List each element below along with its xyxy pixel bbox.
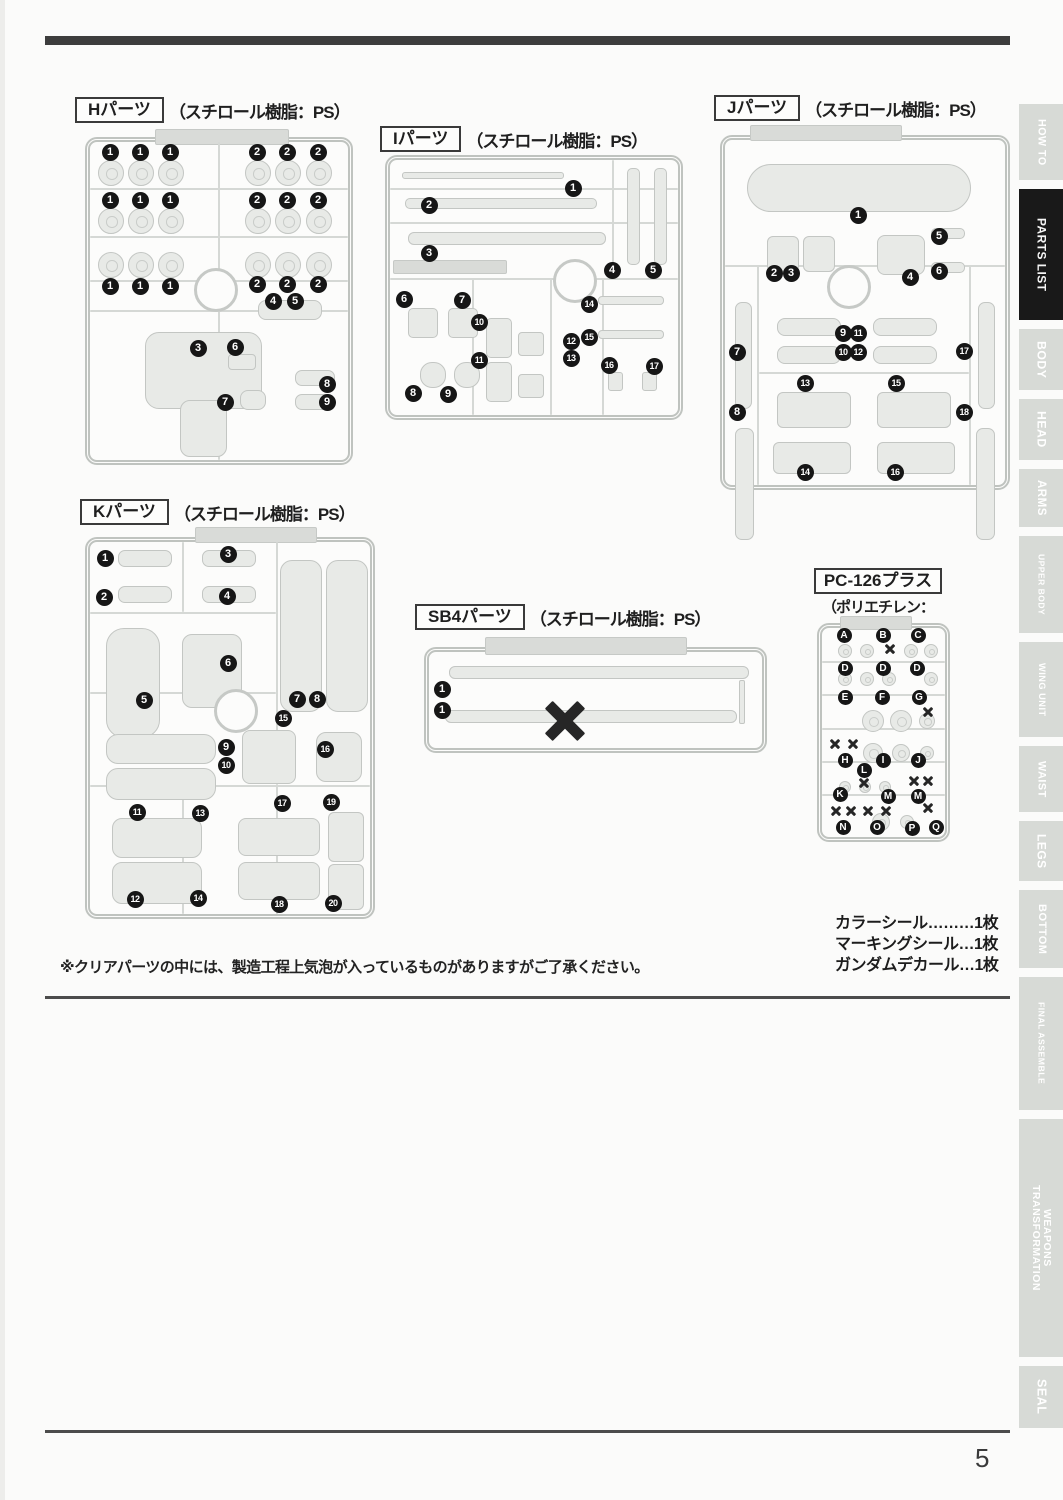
sprue-bar bbox=[472, 278, 474, 415]
tab-wing-unit: WING UNIT bbox=[1019, 642, 1063, 737]
part-number-badge: 9 bbox=[835, 325, 852, 342]
h-parts-label-box: Hパーツ bbox=[75, 97, 164, 123]
part-number-badge: 8 bbox=[729, 404, 746, 421]
part-number-badge: 18 bbox=[956, 404, 973, 421]
j-parts-material: （スチロール樹脂：PS） bbox=[805, 101, 986, 120]
round-part bbox=[158, 252, 184, 278]
part-shape bbox=[118, 586, 172, 603]
part-shape bbox=[112, 818, 202, 858]
part-number-badge: 2 bbox=[249, 276, 266, 293]
runner-center-ring bbox=[194, 268, 238, 312]
page-left-edge bbox=[0, 0, 5, 1500]
part-number-badge: 1 bbox=[132, 144, 149, 161]
polycap-part bbox=[892, 744, 910, 762]
accessory-marking-seal: マーキングシール…1枚 bbox=[835, 934, 998, 955]
part-shape bbox=[402, 172, 564, 179]
tab-how-to: HOW TO bbox=[1019, 104, 1063, 180]
tab-upper-body: UPPER BODY bbox=[1019, 536, 1063, 633]
sb4-parts-label: SB4パーツ（スチロール樹脂：PS） bbox=[415, 604, 710, 630]
sprue-bar bbox=[90, 612, 276, 614]
part-shape bbox=[118, 550, 172, 567]
part-shape bbox=[518, 332, 544, 356]
part-number-badge: 1 bbox=[850, 207, 867, 224]
k-parts-label-box: Kパーツ bbox=[80, 499, 169, 525]
part-shape bbox=[873, 318, 937, 336]
part-shape bbox=[238, 862, 320, 900]
unused-part-x-icon bbox=[542, 698, 588, 744]
sprue-bar bbox=[182, 542, 184, 612]
i-parts-label-box: Iパーツ bbox=[380, 126, 461, 152]
runner-center-ring bbox=[214, 689, 258, 733]
part-number-badge: 12 bbox=[563, 333, 580, 350]
pc-runner: ABCDDDEFGHIJLKMMNOPQ bbox=[817, 623, 950, 842]
round-part bbox=[128, 252, 154, 278]
polycap-letter-badge: P bbox=[905, 821, 920, 836]
part-number-badge: 13 bbox=[797, 375, 814, 392]
part-shape bbox=[240, 390, 266, 410]
k-parts-label: Kパーツ（スチロール樹脂：PS） bbox=[80, 499, 355, 525]
round-part bbox=[158, 160, 184, 186]
polycap-letter-badge: K bbox=[833, 787, 848, 802]
polycap-letter-badge: L bbox=[857, 763, 872, 778]
round-part bbox=[128, 160, 154, 186]
unused-part-x-icon bbox=[847, 738, 859, 750]
sprue-bar bbox=[759, 372, 969, 374]
round-part bbox=[98, 208, 124, 234]
polycap-letter-badge: H bbox=[838, 753, 853, 768]
part-number-badge: 9 bbox=[319, 394, 336, 411]
part-shape bbox=[486, 318, 512, 358]
part-number-badge: 1 bbox=[132, 192, 149, 209]
part-number-badge: 2 bbox=[310, 144, 327, 161]
tab-arms: ARMS bbox=[1019, 469, 1063, 527]
part-number-badge: 6 bbox=[227, 339, 244, 356]
part-number-badge: 1 bbox=[434, 681, 451, 698]
polycap-part bbox=[890, 710, 912, 732]
part-shape bbox=[326, 560, 368, 712]
polycap-letter-badge: M bbox=[881, 789, 896, 804]
part-number-badge: 10 bbox=[218, 757, 235, 774]
polycap-letter-badge: G bbox=[912, 690, 927, 705]
sb4-parts-label-box: SB4パーツ bbox=[415, 604, 525, 630]
part-shape bbox=[408, 308, 438, 338]
polycap-part bbox=[838, 644, 852, 658]
part-number-badge: 4 bbox=[604, 262, 621, 279]
runner-nameplate bbox=[485, 637, 687, 655]
polycap-part bbox=[924, 644, 938, 658]
polycap-letter-badge: F bbox=[875, 690, 890, 705]
h-runner: 1111111112222222224536789 bbox=[85, 137, 353, 465]
part-shape bbox=[877, 235, 925, 275]
round-part bbox=[275, 160, 301, 186]
pc-parts-label-box: PC-126プラス bbox=[814, 568, 942, 594]
round-part bbox=[275, 252, 301, 278]
part-shape bbox=[518, 374, 544, 398]
part-number-badge: 6 bbox=[931, 263, 948, 280]
part-number-badge: 2 bbox=[279, 192, 296, 209]
runner-nameplate bbox=[750, 125, 902, 141]
unused-part-x-icon bbox=[830, 805, 842, 817]
part-number-badge: 17 bbox=[956, 343, 973, 360]
part-number-badge: 5 bbox=[136, 692, 153, 709]
tab-head: HEAD bbox=[1019, 399, 1063, 460]
part-number-badge: 13 bbox=[192, 805, 209, 822]
part-number-badge: 4 bbox=[902, 269, 919, 286]
part-number-badge: 5 bbox=[645, 262, 662, 279]
unused-part-x-icon bbox=[908, 775, 920, 787]
part-number-badge: 3 bbox=[783, 265, 800, 282]
round-part bbox=[245, 160, 271, 186]
unused-part-x-icon bbox=[922, 775, 934, 787]
part-number-badge: 1 bbox=[102, 144, 119, 161]
part-number-badge: 12 bbox=[127, 891, 144, 908]
part-shape bbox=[642, 372, 657, 391]
tab-seal: SEAL bbox=[1019, 1366, 1063, 1428]
part-shape bbox=[777, 346, 841, 364]
part-shape bbox=[598, 296, 664, 305]
part-number-badge: 16 bbox=[887, 464, 904, 481]
part-shape bbox=[777, 392, 851, 428]
part-number-badge: 11 bbox=[471, 352, 488, 369]
polycap-letter-badge: A bbox=[837, 628, 852, 643]
part-shape bbox=[627, 168, 640, 265]
part-shape bbox=[739, 680, 745, 724]
part-number-badge: 1 bbox=[102, 192, 119, 209]
bottom-rule bbox=[45, 1430, 1010, 1433]
round-part bbox=[158, 208, 184, 234]
part-number-badge: 2 bbox=[766, 265, 783, 282]
tab-body: BODY bbox=[1019, 329, 1063, 390]
part-shape bbox=[238, 818, 320, 856]
part-number-badge: 8 bbox=[319, 376, 336, 393]
part-shape bbox=[608, 372, 623, 391]
tab-parts-list: PARTS LIST bbox=[1019, 189, 1063, 320]
part-shape bbox=[106, 768, 216, 800]
part-number-badge: 1 bbox=[132, 278, 149, 295]
k-runner: 1234567891011121314151617181920 bbox=[85, 537, 375, 919]
unused-part-x-icon bbox=[845, 805, 857, 817]
part-number-badge: 1 bbox=[102, 278, 119, 295]
part-number-badge: 2 bbox=[96, 589, 113, 606]
part-number-badge: 6 bbox=[396, 291, 413, 308]
part-number-badge: 13 bbox=[563, 350, 580, 367]
part-shape bbox=[486, 362, 512, 402]
polycap-letter-badge: B bbox=[876, 628, 891, 643]
part-number-badge: 1 bbox=[97, 550, 114, 567]
polycap-letter-badge: C bbox=[911, 628, 926, 643]
part-number-badge: 14 bbox=[797, 464, 814, 481]
parts-list-page: Hパーツ（スチロール樹脂：PS） Iパーツ（スチロール樹脂：PS） Jパーツ（ス… bbox=[0, 0, 1063, 1500]
part-number-badge: 2 bbox=[421, 197, 438, 214]
part-number-badge: 10 bbox=[471, 314, 488, 331]
part-number-badge: 1 bbox=[162, 192, 179, 209]
part-shape bbox=[978, 302, 995, 409]
sprue-bar bbox=[612, 160, 614, 278]
polycap-letter-badge: E bbox=[838, 690, 853, 705]
round-part bbox=[306, 252, 332, 278]
j-runner: 123456789101112131415161718 bbox=[720, 135, 1010, 490]
round-part bbox=[98, 252, 124, 278]
polycap-part bbox=[904, 644, 918, 658]
unused-part-x-icon bbox=[862, 805, 874, 817]
unused-part-x-icon bbox=[922, 706, 934, 718]
unused-part-x-icon bbox=[858, 777, 870, 789]
k-parts-material: （スチロール樹脂：PS） bbox=[174, 505, 355, 524]
runner-nameplate bbox=[840, 616, 912, 630]
polycap-letter-badge: I bbox=[876, 753, 891, 768]
polycap-part bbox=[924, 672, 938, 686]
part-number-badge: 5 bbox=[931, 228, 948, 245]
part-number-badge: 2 bbox=[279, 276, 296, 293]
round-part bbox=[245, 208, 271, 234]
part-shape bbox=[112, 862, 202, 904]
sprue-bar bbox=[550, 278, 552, 415]
polycap-letter-badge: Q bbox=[929, 820, 944, 835]
part-number-badge: 14 bbox=[190, 890, 207, 907]
part-number-badge: 16 bbox=[317, 741, 334, 758]
part-shape bbox=[747, 164, 971, 212]
part-number-badge: 10 bbox=[835, 344, 852, 361]
part-number-badge: 5 bbox=[287, 293, 304, 310]
divider-rule bbox=[45, 996, 1010, 999]
part-number-badge: 17 bbox=[646, 358, 663, 375]
clear-parts-note: ※クリアパーツの中には、製造工程上気泡が入っているものがありますがご了承ください… bbox=[60, 956, 649, 977]
polycap-letter-badge: J bbox=[911, 753, 926, 768]
part-number-badge: 19 bbox=[323, 794, 340, 811]
part-number-badge: 2 bbox=[279, 144, 296, 161]
round-part bbox=[275, 208, 301, 234]
i-parts-material: （スチロール樹脂：PS） bbox=[466, 132, 647, 151]
part-number-badge: 4 bbox=[265, 293, 282, 310]
part-number-badge: 9 bbox=[218, 739, 235, 756]
part-shape bbox=[598, 330, 664, 339]
unused-part-x-icon bbox=[922, 802, 934, 814]
tab-legs: LEGS bbox=[1019, 821, 1063, 881]
part-number-badge: 1 bbox=[434, 702, 451, 719]
unused-part-x-icon bbox=[884, 643, 896, 655]
unused-part-x-icon bbox=[829, 738, 841, 750]
part-number-badge: 1 bbox=[565, 180, 582, 197]
part-shape bbox=[873, 346, 937, 364]
part-number-badge: 11 bbox=[129, 804, 146, 821]
part-shape bbox=[976, 428, 995, 540]
polycap-letter-badge: D bbox=[838, 661, 853, 676]
round-part bbox=[245, 252, 271, 278]
runner-center-ring bbox=[827, 265, 871, 309]
part-shape bbox=[735, 428, 754, 540]
h-parts-material: （スチロール樹脂：PS） bbox=[169, 103, 350, 122]
page-number: 5 bbox=[975, 1443, 989, 1474]
part-number-badge: 7 bbox=[729, 344, 746, 361]
tab-weapons-transformation: WEAPONS TRANSFORMATION bbox=[1019, 1119, 1063, 1357]
i-runner: 1234567891011121314151617 bbox=[385, 155, 683, 420]
part-shape bbox=[228, 354, 256, 370]
part-number-badge: 8 bbox=[309, 691, 326, 708]
accessory-gundam-decal: ガンダムデカール…1枚 bbox=[835, 955, 998, 976]
part-shape bbox=[445, 710, 737, 723]
polycap-letter-badge: N bbox=[836, 820, 851, 835]
sprue-bar bbox=[757, 265, 759, 485]
part-number-badge: 16 bbox=[601, 357, 618, 374]
runner-nameplate bbox=[155, 129, 289, 145]
sprue-bar bbox=[390, 278, 678, 280]
round-part bbox=[306, 160, 332, 186]
part-shape bbox=[106, 734, 216, 764]
round-part bbox=[98, 160, 124, 186]
part-number-badge: 15 bbox=[581, 329, 598, 346]
part-shape bbox=[877, 392, 951, 428]
polycap-letter-badge: D bbox=[876, 661, 891, 676]
part-number-badge: 1 bbox=[162, 278, 179, 295]
part-number-badge: 2 bbox=[310, 276, 327, 293]
round-part bbox=[128, 208, 154, 234]
runner-molded-label bbox=[393, 260, 507, 274]
h-parts-label: Hパーツ（スチロール樹脂：PS） bbox=[75, 97, 350, 123]
runner-nameplate bbox=[195, 527, 317, 543]
part-shape bbox=[803, 236, 835, 272]
i-parts-label: Iパーツ（スチロール樹脂：PS） bbox=[380, 126, 647, 152]
part-number-badge: 8 bbox=[405, 385, 422, 402]
round-part bbox=[306, 208, 332, 234]
part-number-badge: 15 bbox=[888, 375, 905, 392]
part-number-badge: 12 bbox=[850, 344, 867, 361]
part-number-badge: 14 bbox=[581, 296, 598, 313]
part-shape bbox=[408, 232, 606, 245]
part-number-badge: 1 bbox=[162, 144, 179, 161]
part-number-badge: 7 bbox=[289, 691, 306, 708]
j-parts-label-box: Jパーツ bbox=[714, 95, 800, 121]
part-shape bbox=[242, 730, 296, 784]
part-number-badge: 2 bbox=[310, 192, 327, 209]
tab-bottom: BOTTOM bbox=[1019, 890, 1063, 968]
part-number-badge: 9 bbox=[440, 386, 457, 403]
part-number-badge: 3 bbox=[421, 245, 438, 262]
part-number-badge: 11 bbox=[850, 325, 867, 342]
part-shape bbox=[420, 362, 446, 388]
part-shape bbox=[654, 168, 667, 265]
part-number-badge: 2 bbox=[249, 144, 266, 161]
sprue-bar bbox=[969, 265, 971, 485]
polycap-letter-badge: D bbox=[910, 661, 925, 676]
j-parts-label: Jパーツ（スチロール樹脂：PS） bbox=[714, 95, 986, 121]
part-shape bbox=[280, 560, 322, 712]
part-shape bbox=[106, 628, 160, 738]
tab-waist: WAIST bbox=[1019, 746, 1063, 812]
polycap-letter-badge: O bbox=[870, 820, 885, 835]
part-number-badge: 17 bbox=[274, 795, 291, 812]
part-number-badge: 18 bbox=[271, 896, 288, 913]
part-shape bbox=[777, 318, 841, 336]
unused-part-x-icon bbox=[880, 805, 892, 817]
part-number-badge: 20 bbox=[325, 895, 342, 912]
top-rule bbox=[45, 36, 1010, 45]
accessories-list: カラーシール………1枚 マーキングシール…1枚 ガンダムデカール…1枚 bbox=[835, 913, 998, 976]
part-number-badge: 3 bbox=[190, 340, 207, 357]
part-number-badge: 15 bbox=[275, 710, 292, 727]
part-number-badge: 4 bbox=[219, 588, 236, 605]
tab-final-assemble: FINAL ASSEMBLE bbox=[1019, 977, 1063, 1110]
part-number-badge: 7 bbox=[454, 292, 471, 309]
accessory-color-seal: カラーシール………1枚 bbox=[835, 913, 998, 934]
polycap-part bbox=[860, 672, 874, 686]
sb4-runner: 11 bbox=[424, 647, 767, 753]
part-number-badge: 7 bbox=[217, 394, 234, 411]
part-number-badge: 6 bbox=[220, 655, 237, 672]
polycap-part bbox=[860, 644, 874, 658]
part-number-badge: 2 bbox=[249, 192, 266, 209]
sb4-parts-material: （スチロール樹脂：PS） bbox=[530, 610, 711, 629]
part-shape bbox=[328, 812, 364, 862]
part-shape bbox=[449, 666, 749, 679]
part-number-badge: 3 bbox=[220, 546, 237, 563]
polycap-part bbox=[862, 710, 884, 732]
